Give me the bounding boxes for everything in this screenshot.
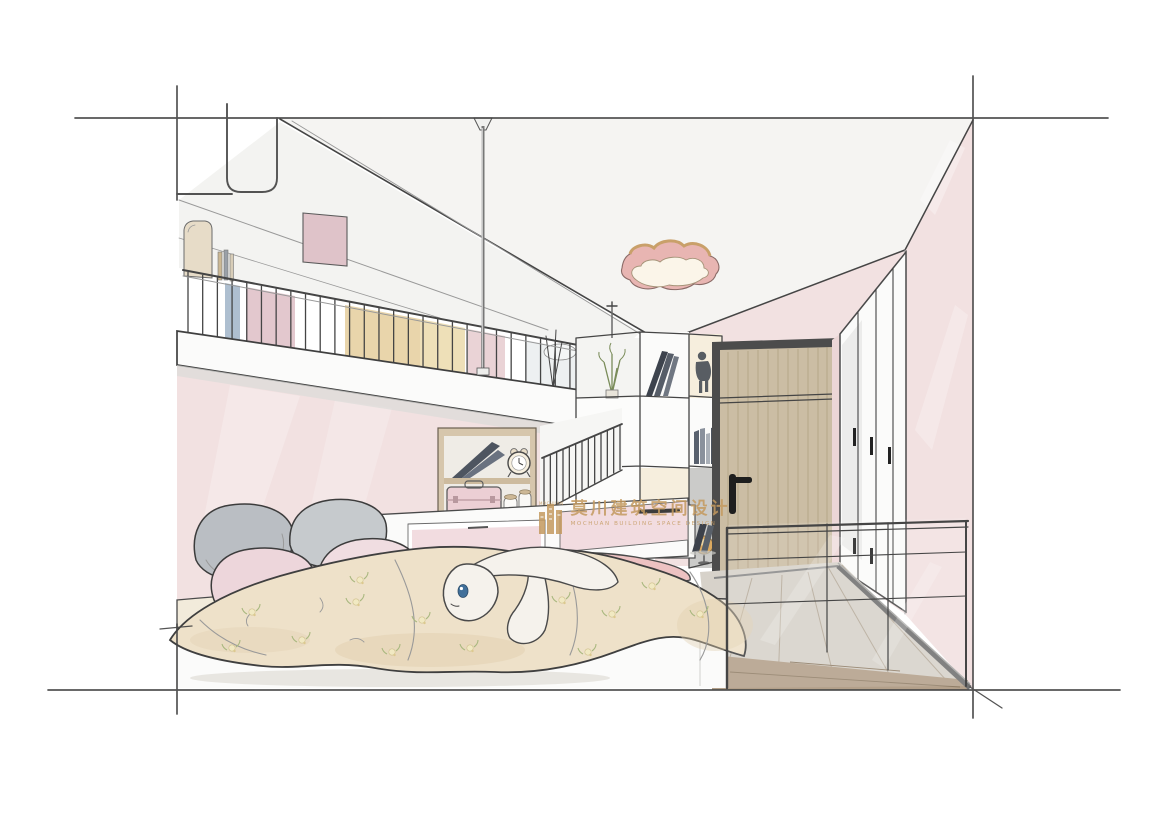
cloud-ceiling-lamp bbox=[621, 241, 718, 290]
shelf-books-row bbox=[694, 427, 715, 464]
room-drawing bbox=[0, 0, 1150, 813]
glass-partition bbox=[727, 518, 968, 688]
interior-sketch-canvas: MOCHUAN 莫川建筑空间设计 MOCHUAN BUILDING SPACE … bbox=[0, 0, 1150, 813]
